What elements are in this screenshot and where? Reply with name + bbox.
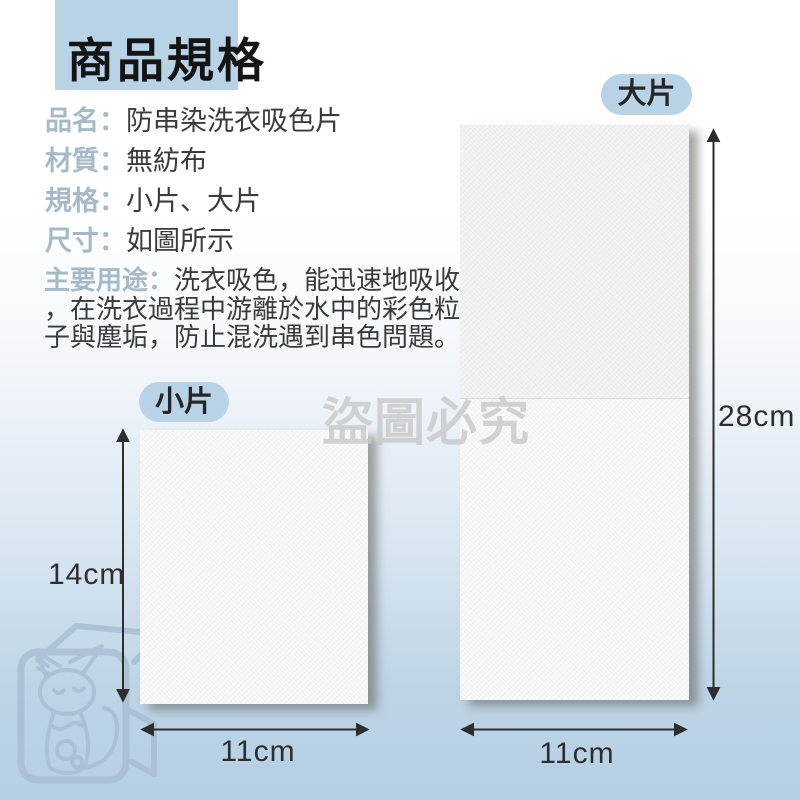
product-spec-image: 商品規格 品名：防串染洗衣吸色片 材質：無紡布 規格：小片、大片 尺寸：如圖所示… <box>0 0 800 800</box>
spec-value: 如圖所示 <box>126 226 234 256</box>
small-width-label: 11cm <box>193 735 323 769</box>
spec-label: 主要用途： <box>44 265 174 295</box>
large-height-label: 28cm <box>718 400 795 434</box>
large-sheet-fold-line <box>460 125 689 399</box>
small-sheet-badge: 小片 <box>139 382 229 422</box>
page-title: 商品規格 <box>67 22 267 91</box>
spec-row-usage: 主要用途：洗衣吸色，能迅速地吸收，在洗衣過程中游離於水中的彩色粒子與塵垢，防止混… <box>44 266 465 352</box>
large-sheet-badge: 大片 <box>601 74 692 115</box>
box-front-face <box>21 652 126 780</box>
spec-row-dimension: 尺寸：如圖所示 <box>45 221 342 261</box>
small-sheet <box>140 430 368 704</box>
spec-label: 材質： <box>45 146 126 176</box>
spec-value: 小片、大片 <box>126 186 261 216</box>
spec-label: 品名： <box>45 106 126 136</box>
spec-row-name: 品名：防串染洗衣吸色片 <box>45 101 342 141</box>
cat-drawing <box>36 646 117 773</box>
spec-label: 規格： <box>45 186 126 216</box>
spec-value: 無紡布 <box>126 146 207 176</box>
spec-row-material: 材質：無紡布 <box>45 141 342 181</box>
small-height-label: 14cm <box>48 558 118 592</box>
anti-piracy-watermark-text: 盜圖必究 <box>322 381 530 455</box>
spec-label: 尺寸： <box>45 226 126 256</box>
large-width-label: 11cm <box>512 737 642 771</box>
spec-row-sizes: 規格：小片、大片 <box>45 181 342 221</box>
box-side-flap <box>128 710 154 774</box>
spec-list: 品名：防串染洗衣吸色片 材質：無紡布 規格：小片、大片 尺寸：如圖所示 <box>45 101 342 261</box>
spec-value: 防串染洗衣吸色片 <box>126 106 342 136</box>
